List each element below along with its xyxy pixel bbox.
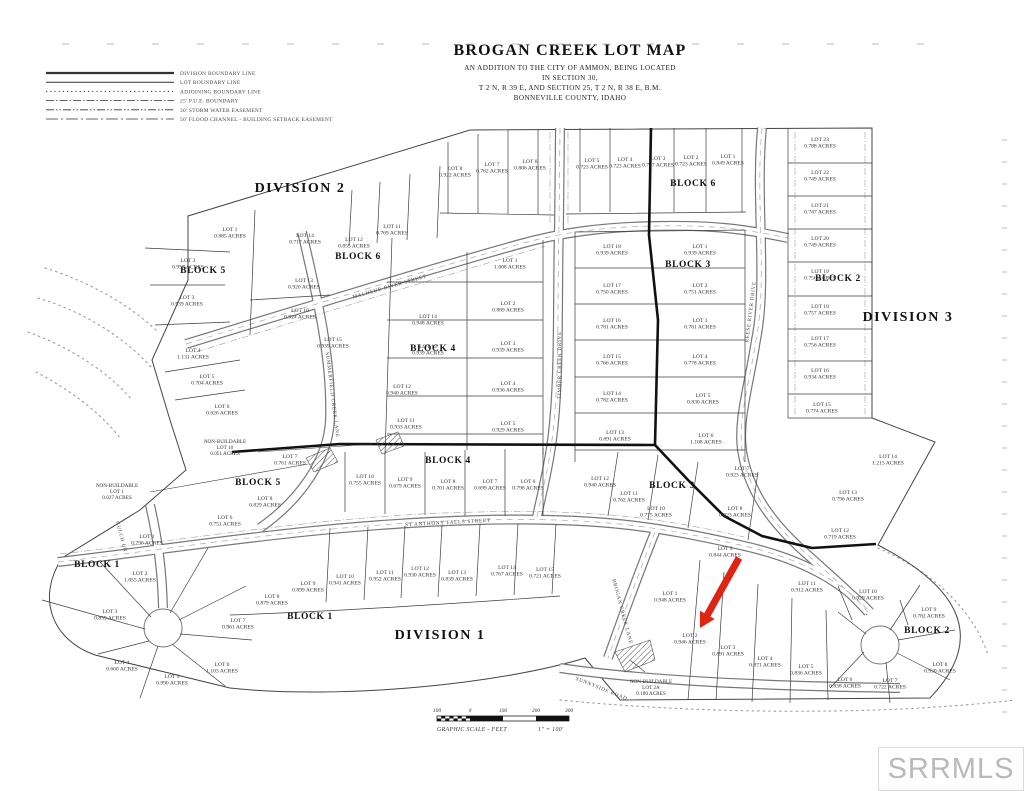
scale-tick: 300 — [564, 708, 574, 714]
street-label: GULCH LN — [114, 521, 128, 553]
lot-label: LOT 20.889 ACRES — [492, 301, 524, 313]
lot-label: LOT 30.727 ACRES — [642, 156, 674, 168]
lot-label: LOT 41.131 ACRES — [177, 348, 209, 360]
legend-item: 25' P.U.E. BOUNDARY — [46, 99, 239, 105]
lot-label: LOT 60.751 ACRES — [209, 515, 241, 527]
lot-label: LOT 160.781 ACRES — [596, 318, 628, 330]
lot-label: LOT 220.749 ACRES — [804, 170, 836, 182]
street-label: TIMBER CREEK DRIVE — [557, 331, 563, 399]
lot-label: LOT 10.885 ACRES — [214, 227, 246, 239]
lot-label: LOT 30.859 ACRES — [94, 609, 126, 621]
lot-label: LOT 20.751 ACRES — [684, 283, 716, 295]
lot-label: LOT 80.923 ACRES — [719, 506, 751, 518]
lot-label: LOT 170.750 ACRES — [596, 283, 628, 295]
lot-label: LOT 70.961 ACRES — [222, 618, 254, 630]
lot-label: LOT 100.941 ACRES — [329, 574, 361, 586]
lot-label: LOT 10.939 ACRES — [684, 244, 716, 256]
lot-label: LOT 70.923 ACRES — [726, 466, 758, 478]
lot-label: LOT 60.838 ACRES — [829, 677, 861, 689]
division-label: DIVISION 3 — [863, 310, 954, 325]
lot-label: LOT 40.936 ACRES — [492, 381, 524, 393]
block-label: BLOCK 3 — [665, 260, 711, 270]
division-label: DIVISION 1 — [395, 628, 486, 643]
lot-label: LOT 130.891 ACRES — [599, 430, 631, 442]
lot-label: LOT 210.747 ACRES — [804, 203, 836, 215]
non-buildable-note: NON-BUILDABLELOT 2A0.180 ACRES — [630, 679, 672, 697]
legend-item: 50' FLOOD CHANNEL - BUILDING SETBACK EAS… — [46, 117, 333, 123]
scale-tick: 100 — [499, 708, 508, 714]
road-network — [58, 128, 900, 688]
lot-label: LOT 60.626 ACRES — [206, 404, 238, 416]
scale-ratio: 1" = 100' — [538, 727, 564, 733]
lot-label: LOT 40.723 ACRES — [609, 157, 641, 169]
lot-label: LOT 21.055 ACRES — [124, 571, 156, 583]
non-buildable-note: NON-BUILDABLELOT 100.051 ACRES — [204, 439, 246, 457]
lot-label: LOT 130.839 ACRES — [441, 570, 473, 582]
lot-label: LOT 150.721 ACRES — [529, 567, 561, 579]
lot-label: LOT 170.756 ACRES — [804, 336, 836, 348]
lot-label: LOT 120.930 ACRES — [404, 566, 436, 578]
lot-label: LOT 20.723 ACRES — [675, 155, 707, 167]
legend: DIVISION BOUNDARY LINELOT BOUNDARY LINEA… — [46, 71, 333, 123]
title-block: BROGAN CREEK LOT MAP AN ADDITION TO THE … — [453, 42, 686, 102]
division-label: DIVISION 2 — [255, 181, 346, 196]
non-buildable-note: NON-BUILDABLELOT 10.027 ACRES — [96, 483, 138, 501]
lot-label: LOT 140.948 ACRES — [412, 314, 444, 326]
lot-label: LOT 110.769 ACRES — [376, 224, 408, 236]
block-label: BLOCK 1 — [74, 560, 120, 570]
lot-label: LOT 141.215 ACRES — [872, 454, 904, 466]
scale-tick: 100 — [433, 708, 442, 714]
mls-watermark-text: SRRMLS — [888, 753, 1015, 786]
lot-label: LOT 140.782 ACRES — [596, 391, 628, 403]
plat-map-canvas: BROGAN CREEK LOT MAP AN ADDITION TO THE … — [0, 0, 1024, 791]
lot-label: LOT 80.701 ACRES — [432, 479, 464, 491]
block-label: BLOCK 5 — [235, 478, 281, 488]
lot-label: LOT 140.767 ACRES — [491, 565, 523, 577]
lot-label: LOT 120.940 ACRES — [386, 384, 418, 396]
cul-de-sac-west — [144, 609, 182, 647]
lot-label: LOT 80.930 ACRES — [924, 662, 956, 674]
lot-label: LOT 100.775 ACRES — [640, 506, 672, 518]
lot-label: LOT 180.939 ACRES — [596, 244, 628, 256]
lot-label: LOT 30.939 ACRES — [492, 341, 524, 353]
lot-label: LOT 30.781 ACRES — [684, 318, 716, 330]
lot-label: LOT 50.830 ACRES — [687, 393, 719, 405]
lot-label: LOT 50.836 ACRES — [790, 664, 822, 676]
block-label: BLOCK 3 — [649, 481, 695, 491]
lot-label: LOT 61.108 ACRES — [690, 433, 722, 445]
block-label: BLOCK 6 — [670, 179, 716, 189]
lot-label: LOT 110.933 ACRES — [390, 418, 422, 430]
lot-label: LOT 150.774 ACRES — [806, 402, 838, 414]
lot-label: LOT 120.719 ACRES — [824, 528, 856, 540]
scale-tick: 200 — [532, 708, 541, 714]
legend-item: ADJOINING BOUNDARY LINE — [46, 89, 261, 95]
lot-label: LOT 190.756 ACRES — [804, 269, 836, 281]
lot-label: LOT 50.723 ACRES — [576, 158, 608, 170]
lot-label: LOT 80.829 ACRES — [249, 496, 281, 508]
lot-map-page: BROGAN CREEK LOT MAP AN ADDITION TO THE … — [0, 0, 1024, 791]
map-subtitle-4: BONNEVILLE COUNTY, IDAHO — [514, 94, 627, 102]
lot-label: LOT 20.957 ACRES — [172, 258, 204, 270]
mls-watermark: SRRMLS — [878, 747, 1024, 791]
lot-label: LOT 10.948 ACRES — [654, 591, 686, 603]
lot-label: LOT 70.761 ACRES — [274, 454, 306, 466]
lot-label: LOT 120.940 ACRES — [584, 476, 616, 488]
map-subtitle-1: AN ADDITION TO THE CITY OF AMMON, BEING … — [464, 64, 676, 72]
lot-label: LOT 10.849 ACRES — [712, 154, 744, 166]
lot-label: LOT 90.782 ACRES — [913, 607, 945, 619]
lot-label: LOT 40.778 ACRES — [684, 354, 716, 366]
legend-item: DIVISION BOUNDARY LINE — [46, 71, 256, 77]
lot-label: LOT 100.929 ACRES — [852, 589, 884, 601]
lot-label: LOT 130.796 ACRES — [832, 490, 864, 502]
block-label: BLOCK 4 — [425, 456, 471, 466]
map-subtitle-2: IN SECTION 30, — [542, 74, 598, 82]
lot-label: LOT 61.103 ACRES — [206, 662, 238, 674]
legend-item-label: 50' FLOOD CHANNEL - BUILDING SETBACK EAS… — [180, 117, 333, 123]
lot-label: LOT 230.788 ACRES — [804, 137, 836, 149]
block-label: BLOCK 2 — [904, 626, 950, 636]
map-title: BROGAN CREEK LOT MAP — [453, 42, 686, 59]
lot-label: LOT 120.855 ACRES — [338, 237, 370, 249]
lot-label: LOT 80.879 ACRES — [256, 594, 288, 606]
scale-bar: 1000100200300 GRAPHIC SCALE - FEET 1" = … — [433, 708, 574, 733]
lot-label: LOT 140.717 ACRES — [289, 233, 321, 245]
lot-label: LOT 110.912 ACRES — [791, 581, 823, 593]
legend-item: LOT BOUNDARY LINE — [46, 80, 241, 86]
scale-caption: GRAPHIC SCALE - FEET — [437, 727, 507, 733]
legend-item-label: 30' STORM WATER EASEMENT — [180, 108, 263, 114]
legend-item-label: LOT BOUNDARY LINE — [180, 80, 241, 86]
lot-label: LOT 100.755 ACRES — [349, 474, 381, 486]
lot-label: LOT 200.749 ACRES — [804, 236, 836, 248]
lot-label: LOT 110.952 ACRES — [369, 570, 401, 582]
lot-label: LOT 50.929 ACRES — [492, 421, 524, 433]
lot-label: LOT 30.891 ACRES — [712, 645, 744, 657]
scale-tick: 0 — [469, 708, 472, 714]
legend-item-label: ADJOINING BOUNDARY LINE — [180, 89, 261, 95]
lot-label: LOT 160.934 ACRES — [804, 368, 836, 380]
lot-label: LOT 80.922 ACRES — [439, 166, 471, 178]
lot-label: LOT 110.762 ACRES — [613, 491, 645, 503]
lot-label: LOT 150.766 ACRES — [596, 354, 628, 366]
lot-label: LOT 70.762 ACRES — [476, 162, 508, 174]
map-subtitle-3: T 2 N, R 39 E, AND SECTION 25, T 2 N, R … — [479, 84, 661, 92]
lot-label: LOT 90.679 ACRES — [389, 477, 421, 489]
legend-item-label: DIVISION BOUNDARY LINE — [180, 71, 256, 77]
block-label: BLOCK 6 — [335, 252, 381, 262]
lot-label: LOT 70.699 ACRES — [474, 479, 506, 491]
lot-label: LOT 20.946 ACRES — [674, 633, 706, 645]
legend-item: 30' STORM WATER EASEMENT — [46, 108, 263, 114]
lot-label: LOT 70.722 ACRES — [874, 678, 906, 690]
cul-de-sac-east — [861, 626, 899, 664]
lot-label: LOT 50.704 ACRES — [191, 374, 223, 386]
lot-label: LOT 50.990 ACRES — [156, 674, 188, 686]
lot-label: LOT 180.757 ACRES — [804, 304, 836, 316]
lot-label: LOT 40.660 ACRES — [106, 660, 138, 672]
block-label: BLOCK 1 — [287, 612, 333, 622]
legend-item-label: 25' P.U.E. BOUNDARY — [180, 99, 239, 105]
lot-label: LOT 30.939 ACRES — [171, 295, 203, 307]
lot-label: LOT 60.798 ACRES — [512, 479, 544, 491]
lot-label: LOT 60.806 ACRES — [514, 159, 546, 171]
lot-label: LOT 90.899 ACRES — [292, 581, 324, 593]
